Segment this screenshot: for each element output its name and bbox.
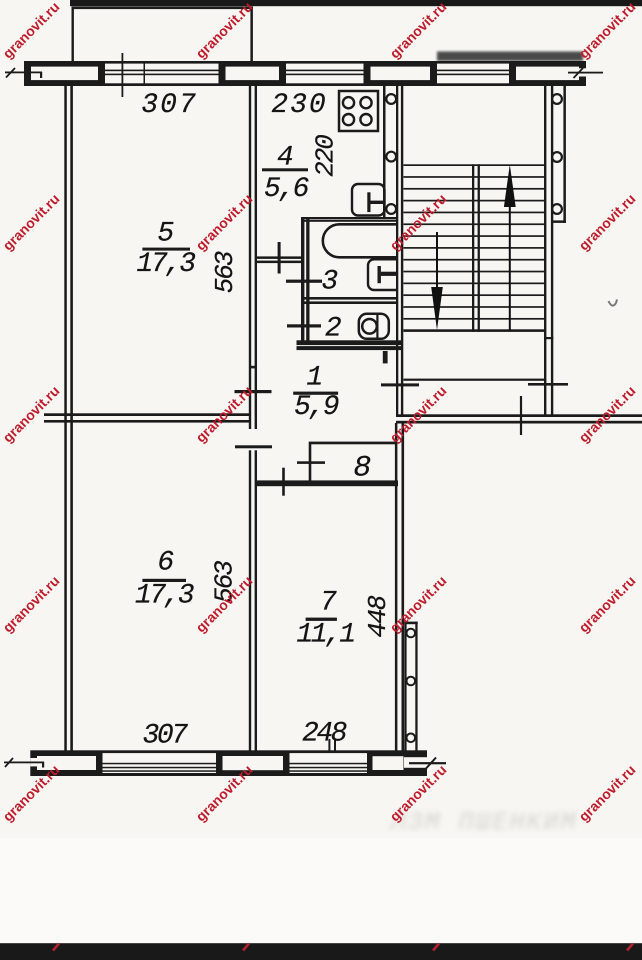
svg-text:448: 448 <box>363 596 393 638</box>
svg-text:230: 230 <box>271 90 327 121</box>
svg-text:248: 248 <box>302 719 347 750</box>
svg-text:307: 307 <box>141 90 197 121</box>
svg-text:granovit.ru: granovit.ru <box>0 0 63 62</box>
svg-text:2: 2 <box>325 314 341 345</box>
svg-text:granovit.ru: granovit.ru <box>575 0 638 62</box>
svg-text:11,1: 11,1 <box>296 620 354 651</box>
svg-text:granovit.ru: granovit.ru <box>575 572 638 635</box>
svg-text:granovit.ru: granovit.ru <box>192 0 255 62</box>
svg-text:granovit.ru: granovit.ru <box>192 190 255 253</box>
svg-text:1: 1 <box>306 363 321 394</box>
svg-text:7: 7 <box>320 588 337 619</box>
svg-text:17,3: 17,3 <box>135 581 194 612</box>
svg-text:8: 8 <box>353 452 370 486</box>
svg-text:granovit.ru: granovit.ru <box>0 572 63 635</box>
svg-text:5: 5 <box>157 219 174 250</box>
svg-text:307: 307 <box>143 721 189 752</box>
svg-text:granovit.ru: granovit.ru <box>386 382 449 445</box>
svg-text:6: 6 <box>157 548 173 579</box>
svg-text:granovit.ru: granovit.ru <box>0 190 63 253</box>
svg-text:5,6: 5,6 <box>264 174 309 205</box>
svg-text:5,9: 5,9 <box>294 392 339 423</box>
svg-text:granovit.ru: granovit.ru <box>575 382 638 445</box>
svg-text:ЛЗМ ПШЕНКИМ: ЛЗМ ПШЕНКИМ <box>388 808 577 837</box>
svg-text:3: 3 <box>321 267 337 298</box>
svg-text:granovit.ru: granovit.ru <box>575 190 638 253</box>
svg-text:granovit.ru: granovit.ru <box>575 761 638 824</box>
svg-text:220: 220 <box>311 135 341 177</box>
svg-text:17,3: 17,3 <box>136 249 195 280</box>
svg-text:563: 563 <box>210 251 240 293</box>
